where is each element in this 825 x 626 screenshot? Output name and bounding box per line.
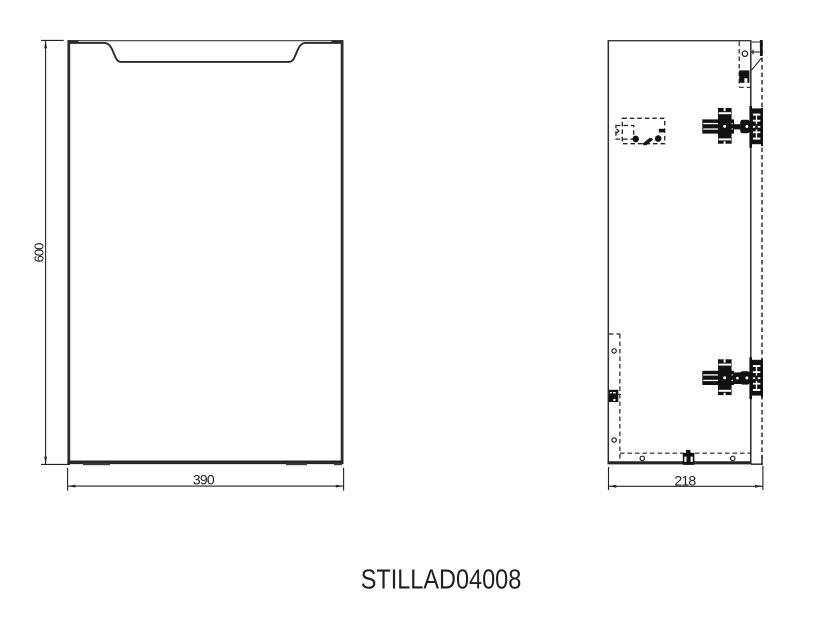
svg-text:390: 390 xyxy=(193,471,215,487)
svg-text:600: 600 xyxy=(32,243,47,262)
svg-text:STILLAD04008: STILLAD04008 xyxy=(361,565,522,595)
svg-text:218: 218 xyxy=(674,472,696,488)
